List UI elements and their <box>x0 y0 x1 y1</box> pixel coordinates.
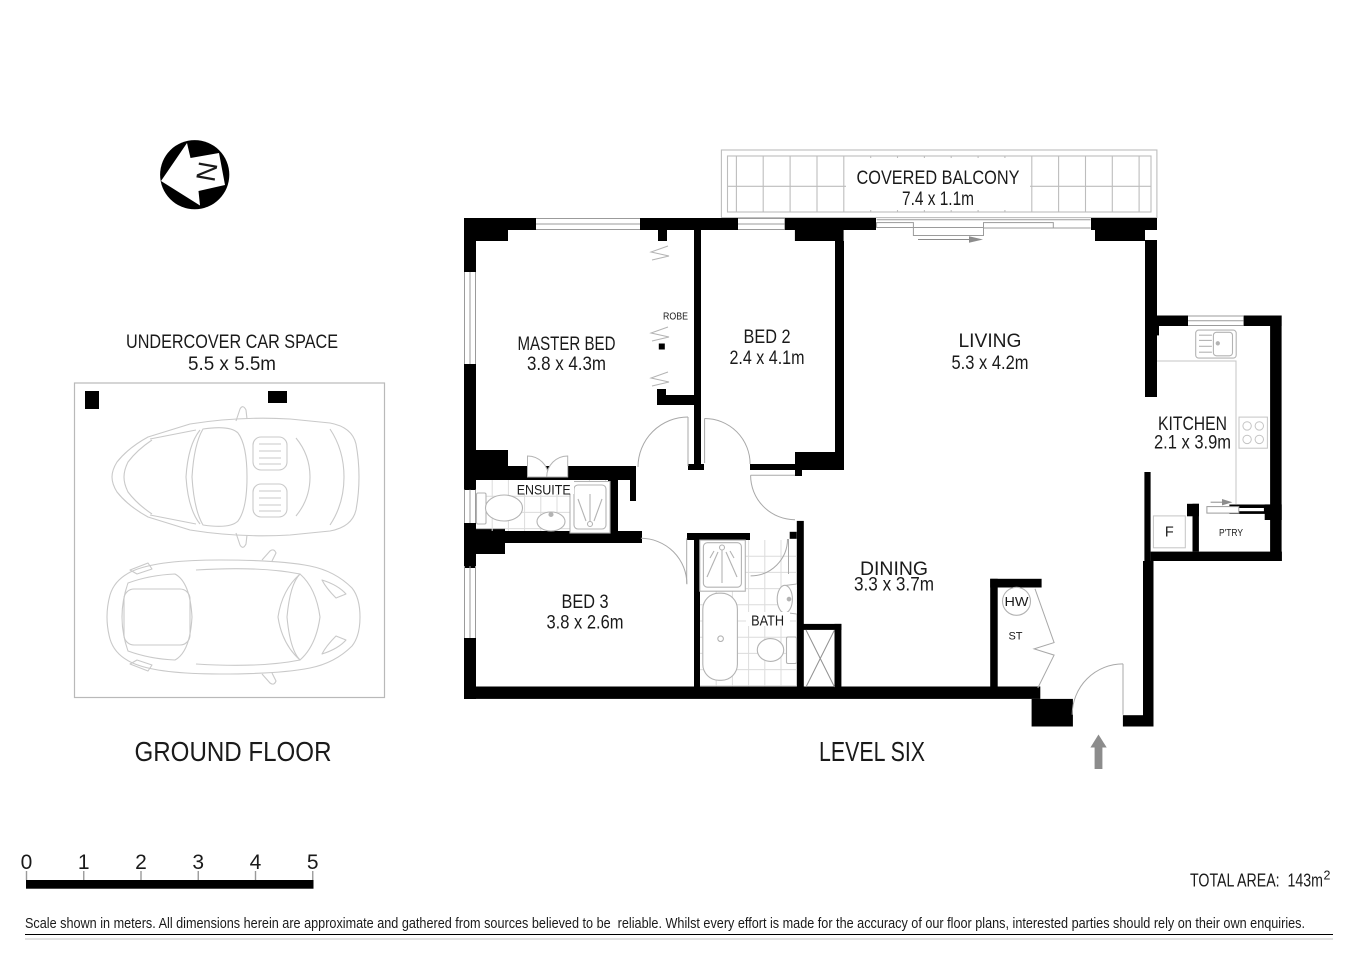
svg-text:5.5 x 5.5m: 5.5 x 5.5m <box>188 353 276 375</box>
svg-text:ST: ST <box>1008 631 1022 643</box>
svg-text:4: 4 <box>250 851 262 874</box>
svg-text:2.4 x 4.1m: 2.4 x 4.1m <box>730 347 805 369</box>
svg-text:1: 1 <box>78 851 90 874</box>
svg-text:MASTER BED: MASTER BED <box>518 333 616 355</box>
svg-text:3: 3 <box>192 851 204 874</box>
svg-text:5: 5 <box>307 851 319 874</box>
svg-text:Scale shown in meters. All dim: Scale shown in meters. All dimensions he… <box>25 916 1305 932</box>
svg-text:3.3 x 3.7m: 3.3 x 3.7m <box>854 574 934 596</box>
svg-text:UNDERCOVER CAR SPACE: UNDERCOVER CAR SPACE <box>126 331 338 353</box>
svg-text:ROBE: ROBE <box>663 311 688 323</box>
svg-text:3.8 x 4.3m: 3.8 x 4.3m <box>527 353 606 375</box>
svg-text:2: 2 <box>135 851 147 874</box>
svg-text:GROUND FLOOR: GROUND FLOOR <box>135 736 332 767</box>
svg-text:COVERED BALCONY: COVERED BALCONY <box>857 167 1020 189</box>
svg-text:5.3 x 4.2m: 5.3 x 4.2m <box>952 352 1029 374</box>
svg-text:F: F <box>1165 525 1174 541</box>
svg-text:2.1 x 3.9m: 2.1 x 3.9m <box>1154 432 1231 454</box>
svg-text:LIVING: LIVING <box>959 330 1022 352</box>
svg-text:P'TRY: P'TRY <box>1219 527 1243 539</box>
svg-text:TOTAL AREA: 143m: TOTAL AREA: 143m <box>1190 870 1323 891</box>
svg-text:2: 2 <box>1324 869 1331 883</box>
svg-text:BED 3: BED 3 <box>562 591 609 613</box>
svg-text:BATH: BATH <box>751 614 784 630</box>
svg-text:LEVEL SIX: LEVEL SIX <box>819 736 925 767</box>
svg-text:0: 0 <box>21 851 33 874</box>
svg-text:HW: HW <box>1005 594 1030 609</box>
svg-text:ENSUITE: ENSUITE <box>517 482 571 498</box>
svg-text:7.4 x 1.1m: 7.4 x 1.1m <box>902 188 974 210</box>
svg-text:3.8 x 2.6m: 3.8 x 2.6m <box>547 612 624 634</box>
svg-text:BED 2: BED 2 <box>744 326 791 348</box>
